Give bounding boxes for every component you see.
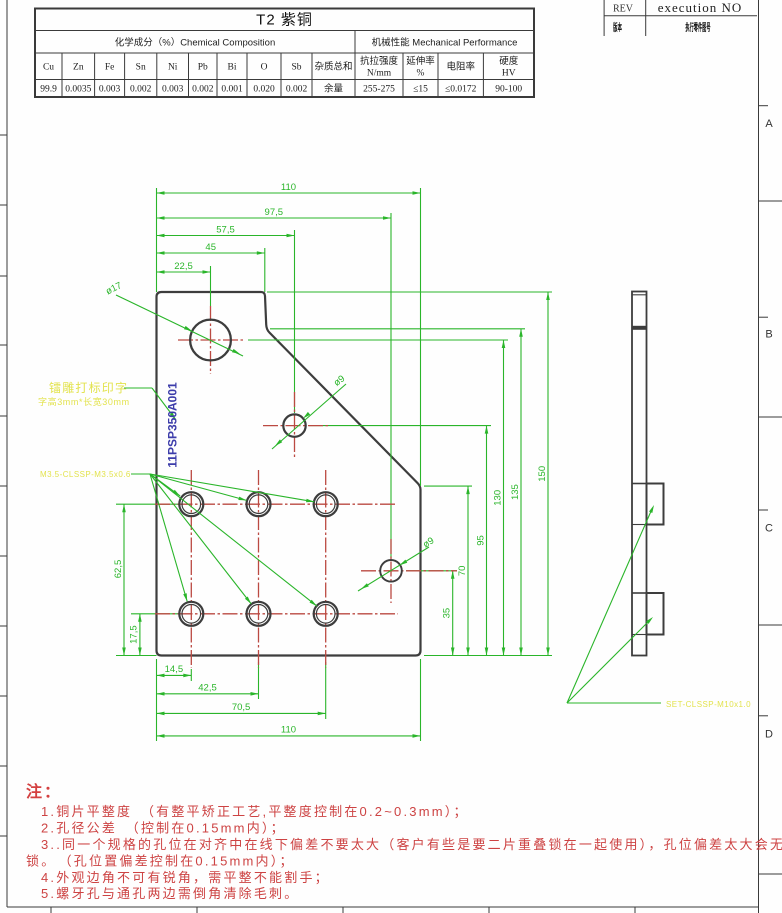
svg-text:70,5: 70,5 [232, 702, 251, 713]
svg-text:90-100: 90-100 [495, 85, 522, 95]
svg-text:11PSP350A001: 11PSP350A001 [166, 382, 180, 468]
svg-text:0.003: 0.003 [162, 85, 184, 95]
svg-text:3..同一个规格的孔位在对齐中在线下偏差不要太大（客户有些是: 3..同一个规格的孔位在对齐中在线下偏差不要太大（客户有些是要二片重叠锁在一起使… [41, 837, 782, 852]
svg-text:杂质总和: 杂质总和 [314, 61, 352, 73]
svg-text:Pb: Pb [198, 63, 208, 73]
svg-text:REV: REV [613, 4, 634, 15]
svg-text:57,5: 57,5 [216, 224, 235, 235]
svg-text:T2 紫铜: T2 紫铜 [256, 12, 313, 29]
svg-text:42,5: 42,5 [198, 683, 217, 694]
svg-text:SET-CLSSP-M10x1.0: SET-CLSSP-M10x1.0 [666, 700, 751, 709]
svg-text:0.002: 0.002 [192, 85, 214, 95]
svg-text:≤15: ≤15 [413, 85, 428, 95]
svg-text:0.003: 0.003 [99, 85, 121, 95]
svg-text:execution NO: execution NO [658, 0, 743, 15]
svg-text:Fe: Fe [105, 63, 115, 73]
svg-text:110: 110 [281, 182, 296, 193]
svg-text:镭雕打标印字: 镭雕打标印字 [49, 380, 128, 395]
svg-text:2.孔径公差 （控制在0.15mm内）；: 2.孔径公差 （控制在0.15mm内）； [41, 821, 286, 837]
svg-text:14,5: 14,5 [165, 664, 184, 675]
svg-text:5.螺牙孔与通孔两边需倒角清除毛刺。: 5.螺牙孔与通孔两边需倒角清除毛刺。 [41, 886, 299, 901]
svg-text:M3.5-CLSSP-M3.5x0.6: M3.5-CLSSP-M3.5x0.6 [40, 470, 131, 479]
svg-text:字高3mm*长宽30mm: 字高3mm*长宽30mm [38, 396, 130, 407]
svg-text:抗拉强度: 抗拉强度 [360, 55, 399, 67]
svg-text:≤0.0172: ≤0.0172 [445, 85, 477, 95]
svg-text:1.铜片平整度 （有整平矫正工艺,平整度控制在0.2~0.3: 1.铜片平整度 （有整平矫正工艺,平整度控制在0.2~0.3mm）； [41, 804, 469, 820]
svg-text:C: C [765, 523, 773, 535]
svg-text:化学成分（%）Chemical Composition: 化学成分（%）Chemical Composition [115, 37, 275, 49]
svg-text:Sb: Sb [291, 63, 301, 73]
svg-text:45: 45 [205, 242, 216, 253]
svg-text:4.外观边角不可有锐角，需平整不能割手；: 4.外观边角不可有锐角，需平整不能割手； [41, 870, 330, 886]
svg-text:0.002: 0.002 [286, 85, 308, 95]
svg-text:%: % [417, 69, 425, 79]
svg-text:Bi: Bi [228, 63, 237, 73]
svg-text:255-275: 255-275 [363, 85, 395, 95]
svg-text:150: 150 [537, 466, 548, 482]
svg-text:执行零件图号: 执行零件图号 [685, 21, 710, 34]
svg-text:电阻率: 电阻率 [446, 61, 475, 73]
svg-text:95: 95 [475, 535, 486, 546]
svg-text:机械性能 Mechanical Performance: 机械性能 Mechanical Performance [372, 37, 518, 49]
svg-text:B: B [765, 329, 772, 341]
svg-text:0.001: 0.001 [221, 85, 243, 95]
svg-text:A: A [765, 118, 773, 130]
svg-text:N/mm: N/mm [367, 69, 392, 79]
svg-text:硬度: 硬度 [499, 55, 519, 67]
svg-text:版本: 版本 [612, 21, 622, 34]
svg-text:Cu: Cu [43, 63, 54, 73]
svg-text:Ni: Ni [168, 63, 178, 73]
svg-text:0.0035: 0.0035 [65, 85, 91, 95]
svg-text:延伸率: 延伸率 [406, 55, 435, 67]
svg-text:110: 110 [281, 725, 296, 736]
svg-text:O: O [261, 63, 268, 73]
svg-text:22,5: 22,5 [174, 261, 193, 272]
svg-text:注：: 注： [26, 782, 62, 801]
svg-text:130: 130 [492, 490, 503, 506]
svg-text:Sn: Sn [136, 63, 146, 73]
svg-text:35: 35 [442, 608, 453, 619]
svg-text:135: 135 [510, 484, 521, 500]
svg-text:17,5: 17,5 [129, 625, 140, 644]
svg-text:70: 70 [457, 566, 468, 577]
svg-text:Zn: Zn [73, 63, 84, 73]
svg-text:HV: HV [502, 69, 516, 79]
svg-text:锁。 （孔位置偏差控制在0.15mm内）；: 锁。 （孔位置偏差控制在0.15mm内）； [26, 854, 295, 870]
svg-text:0.020: 0.020 [253, 85, 275, 95]
svg-text:0.002: 0.002 [130, 85, 152, 95]
svg-text:97,5: 97,5 [265, 207, 284, 218]
svg-text:62,5: 62,5 [113, 560, 124, 579]
svg-text:99.9: 99.9 [40, 85, 57, 95]
svg-text:余量: 余量 [324, 83, 344, 95]
svg-text:D: D [765, 729, 773, 741]
